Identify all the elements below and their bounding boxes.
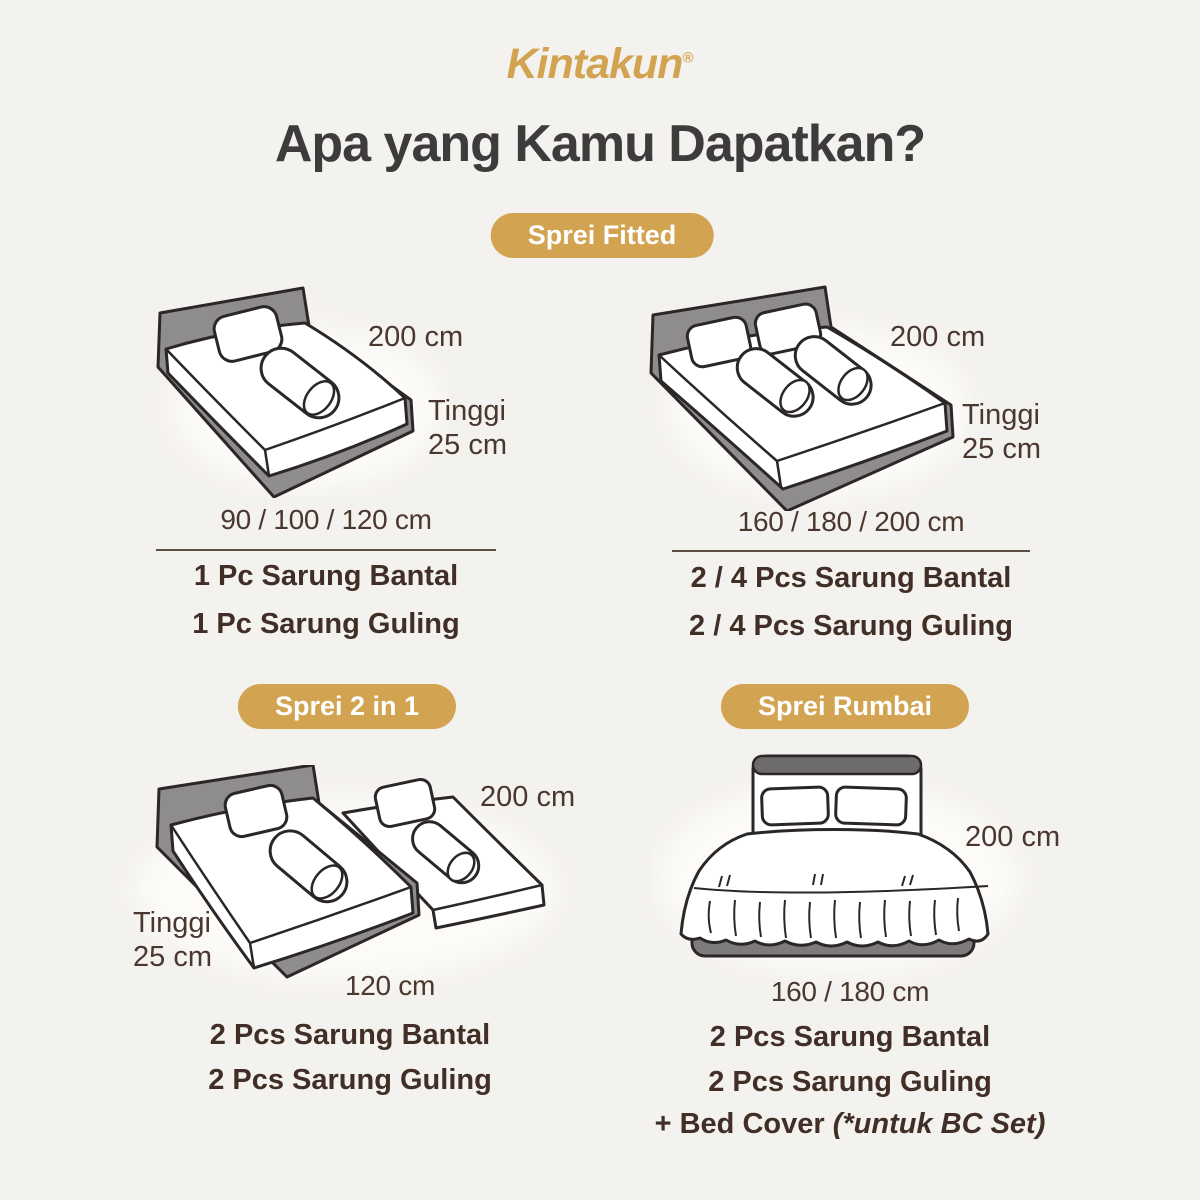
height-label-word: Tinggi bbox=[962, 398, 1041, 432]
length-label: 200 cm bbox=[368, 320, 463, 354]
divider bbox=[156, 549, 496, 551]
bonus-note: (*untuk BC Set) bbox=[833, 1108, 1046, 1140]
height-label-value: 25 cm bbox=[133, 940, 212, 974]
brand-logo-text: Kintakun bbox=[506, 40, 682, 88]
content-line: 1 Pc Sarung Guling bbox=[146, 608, 506, 641]
content-line: 2 / 4 Pcs Sarung Bantal bbox=[671, 562, 1031, 595]
content-line: 2 Pcs Sarung Guling bbox=[650, 1066, 1050, 1099]
content-line: 2 Pcs Sarung Bantal bbox=[150, 1019, 550, 1052]
length-label: 200 cm bbox=[480, 780, 575, 814]
fitted-double-bed-illustration bbox=[645, 281, 985, 511]
badge-sprei-rumbai: Sprei Rumbai bbox=[721, 684, 969, 729]
content-line: 2 / 4 Pcs Sarung Guling bbox=[671, 610, 1031, 643]
divider bbox=[672, 550, 1030, 552]
pillow-icon bbox=[761, 787, 828, 825]
length-label: 200 cm bbox=[965, 820, 1060, 854]
length-label: 200 cm bbox=[890, 320, 985, 354]
bonus-line: + Bed Cover (*untuk BC Set) bbox=[630, 1108, 1070, 1141]
content-line: 2 Pcs Sarung Guling bbox=[150, 1064, 550, 1097]
bonus-prefix: + Bed Cover bbox=[655, 1108, 833, 1140]
height-label-value: 25 cm bbox=[962, 432, 1041, 466]
badge-sprei-2in1: Sprei 2 in 1 bbox=[238, 684, 456, 729]
sizes-label: 90 / 100 / 120 cm bbox=[146, 504, 506, 536]
sizes-label: 160 / 180 cm bbox=[650, 976, 1050, 1008]
height-label-word: Tinggi bbox=[428, 394, 507, 428]
sizes-label: 160 / 180 / 200 cm bbox=[672, 506, 1030, 538]
fitted-single-bed-illustration bbox=[148, 283, 448, 498]
height-label: Tinggi 25 cm bbox=[962, 398, 1041, 466]
infographic-root: { "brand": { "logo_text": "Kintakun", "r… bbox=[0, 0, 1200, 1200]
badge-sprei-fitted: Sprei Fitted bbox=[491, 213, 714, 258]
content-line: 2 Pcs Sarung Bantal bbox=[650, 1021, 1050, 1054]
sizes-label: 120 cm bbox=[300, 970, 480, 1002]
height-label: Tinggi 25 cm bbox=[428, 394, 507, 462]
height-label: Tinggi 25 cm bbox=[133, 906, 212, 974]
content-line: 1 Pc Sarung Bantal bbox=[146, 560, 506, 593]
height-label-value: 25 cm bbox=[428, 428, 507, 462]
brand-logo: Kintakun® bbox=[506, 40, 693, 89]
rumbai-bed-illustration bbox=[650, 748, 1060, 998]
height-label-word: Tinggi bbox=[133, 906, 212, 940]
pillow-icon bbox=[835, 787, 906, 825]
registered-mark: ® bbox=[682, 50, 693, 67]
page-title: Apa yang Kamu Dapatkan? bbox=[275, 114, 925, 174]
